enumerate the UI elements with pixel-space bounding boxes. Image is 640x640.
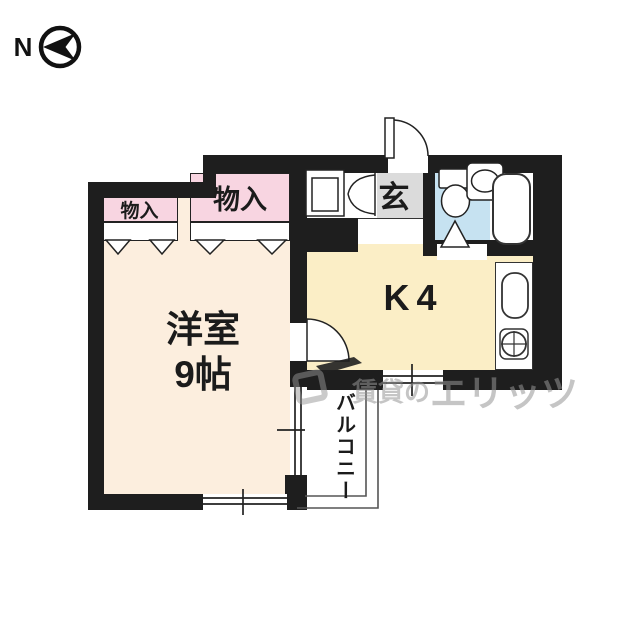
entrance-door-icon [385, 118, 428, 173]
watermark-text: 賃貸のエリッツ [352, 368, 578, 412]
washer-pan-icon [306, 170, 344, 216]
genkan-label: 玄 [358, 171, 430, 218]
watermark-part1: 賃貸の [352, 372, 430, 409]
kitchen-label: K4 [340, 272, 480, 324]
fixtures-overlay [0, 0, 640, 640]
bathtub-icon [493, 174, 530, 244]
kitchen-door-icon [290, 319, 349, 361]
western-room-size: 9帖 [174, 352, 232, 397]
closet-small-label: 物入 [101, 196, 178, 222]
kitchen-sink-icon [502, 273, 528, 318]
north-label: N [10, 33, 36, 61]
watermark-part2: エリッツ [430, 363, 578, 417]
western-room-label: 洋室 9帖 [110, 302, 296, 402]
window-south [203, 489, 287, 515]
north-compass-icon [41, 28, 79, 66]
western-room-name: 洋室 [166, 307, 240, 352]
bath-door-icon [441, 221, 469, 247]
gas-burner-icon [500, 329, 528, 359]
closet-door-marks [106, 240, 286, 254]
floorplan-canvas: N 物入 物入 玄 K4 洋室 9帖 バルコニー 賃貸のエリッツ [0, 0, 640, 640]
closet-large-label: 物入 [190, 173, 290, 222]
